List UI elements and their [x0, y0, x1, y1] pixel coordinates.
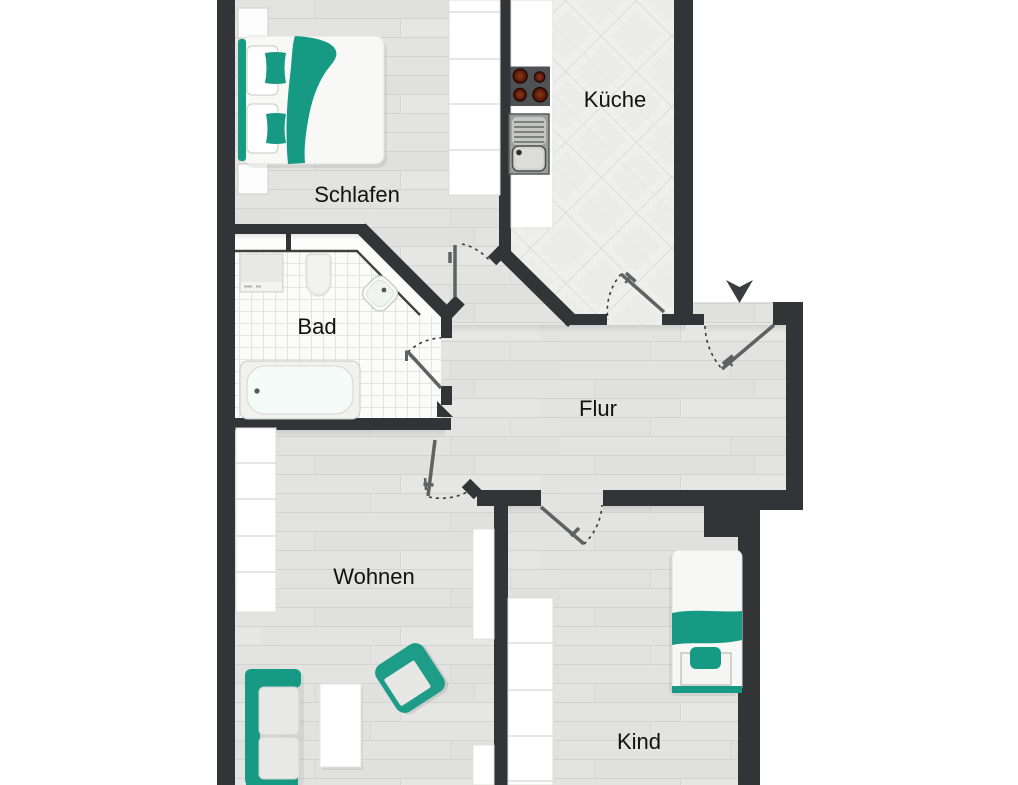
- svg-text:Kind: Kind: [617, 729, 661, 754]
- svg-text:Flur: Flur: [579, 396, 617, 421]
- svg-text:Küche: Küche: [584, 87, 646, 112]
- svg-text:Wohnen: Wohnen: [333, 564, 415, 589]
- svg-text:Bad: Bad: [297, 314, 336, 339]
- svg-text:Schlafen: Schlafen: [314, 182, 400, 207]
